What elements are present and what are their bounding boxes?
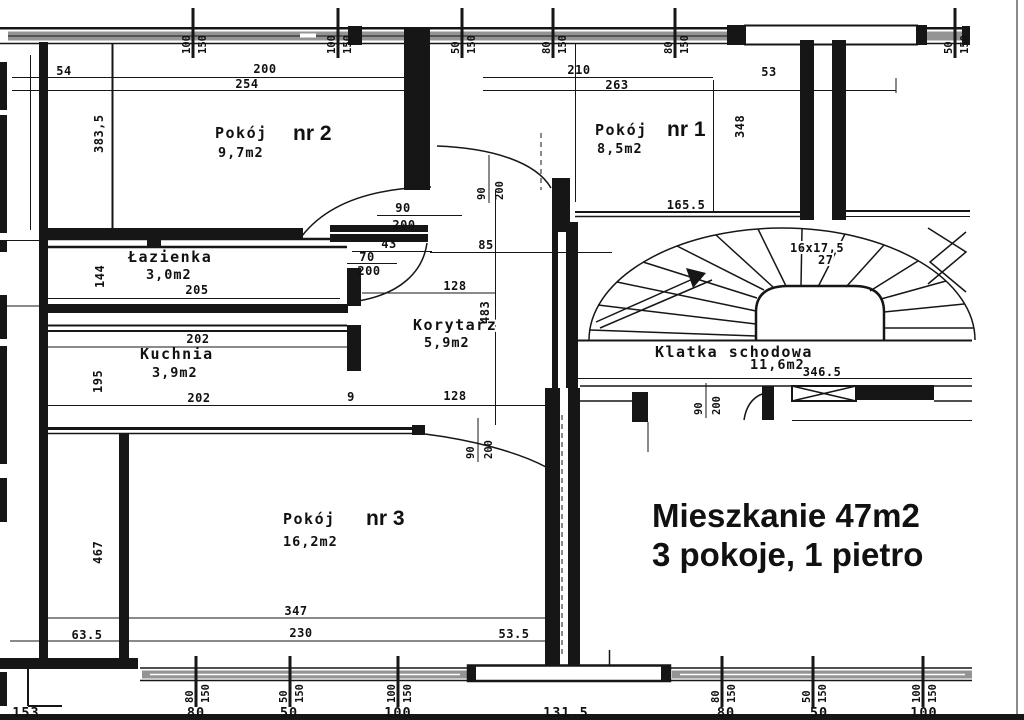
dim-347: 347 (284, 604, 307, 618)
marker-value: 150 (557, 35, 569, 54)
room-labels: Pokój nr 2 9,7m2 Pokój nr 1 8,5m2 Łazien… (127, 118, 844, 550)
label-pokoj3-nr: nr 3 (366, 507, 405, 530)
marker-value: 100 (911, 684, 923, 703)
dim-254: 254 (235, 77, 258, 91)
left-edge-walls (0, 42, 48, 660)
window-marker: 50 150 (801, 656, 829, 707)
marker-value: 150 (927, 684, 939, 703)
marker-value: 50 (943, 41, 955, 54)
dim-202-top: 202 (186, 332, 209, 346)
bottom-dim: 131.5 (543, 705, 589, 720)
apartment-annotation: Mieszkanie 47m2 3 pokoje, 1 pietro (652, 497, 923, 573)
dim-467: 467 (91, 541, 105, 564)
dim-263: 263 (605, 78, 628, 92)
top-wall-windows (0, 25, 970, 45)
bottom-dim: 100 (384, 705, 411, 720)
label-pokoj3: Pokój (283, 510, 336, 528)
marker-value: 80 (663, 41, 675, 54)
label-kuchnia: Kuchnia (140, 345, 214, 363)
label-lazienka: Łazienka (127, 248, 212, 266)
door-pokoj3-width: 90 (465, 446, 477, 459)
bottom-dim: 50 (280, 705, 298, 720)
window-marker: 100 150 (911, 656, 939, 707)
dim-144: 144 (93, 265, 107, 288)
dim-202-bottom: 202 (187, 391, 210, 405)
bottom-dim: 153 (12, 705, 39, 720)
dim-53: 53 (761, 65, 776, 79)
dim-195: 195 (91, 370, 105, 393)
marker-value: 150 (342, 35, 354, 54)
door-pokoj2-width: 90 (395, 201, 410, 215)
marker-value: 100 (386, 684, 398, 703)
window-marker: 50 150 (278, 656, 306, 707)
stair-direction-arrow (596, 274, 704, 322)
marker-value: 150 (679, 35, 691, 54)
dim-205: 205 (185, 283, 208, 297)
entrance-wall (566, 379, 972, 453)
area-pokoj1: 8,5m2 (597, 141, 643, 157)
dim-165-5: 165.5 (667, 198, 706, 212)
dim-128-top: 128 (443, 279, 466, 293)
dim-383-5: 383,5 (92, 114, 106, 153)
annotation-line2: 3 pokoje, 1 pietro (652, 536, 923, 573)
bottom-dim: 80 (187, 705, 205, 720)
door-entrance-width: 90 (693, 402, 705, 415)
dim-346-5: 346.5 (803, 365, 842, 379)
door-arc-entrance (744, 394, 762, 420)
room-pokoj1-walls (437, 40, 970, 388)
marker-value: 50 (450, 41, 462, 54)
dim-230: 230 (289, 626, 312, 640)
marker-value: 80 (710, 690, 722, 703)
door-lazienka-43: 43 (381, 237, 396, 251)
label-pokoj1-nr: nr 1 (667, 118, 706, 141)
dim-85: 85 (478, 238, 493, 252)
annotation-line1: Mieszkanie 47m2 (652, 497, 920, 534)
marker-value: 150 (200, 684, 212, 703)
marker-value: 150 (726, 684, 738, 703)
dim-128-bottom: 128 (443, 389, 466, 403)
floor-plan: Pokój nr 2 9,7m2 Pokój nr 1 8,5m2 Łazien… (0, 0, 1024, 720)
dim-210: 210 (567, 63, 590, 77)
marker-value: 50 (801, 690, 813, 703)
marker-value: 150 (402, 684, 414, 703)
marker-value: 100 (181, 35, 193, 54)
door-pokoj2-height: 200 (392, 218, 415, 232)
area-lazienka: 3,0m2 (146, 267, 192, 283)
stair-steps (590, 229, 974, 336)
marker-value: 150 (817, 684, 829, 703)
marker-value: 150 (294, 684, 306, 703)
dim-54: 54 (56, 64, 71, 78)
area-pokoj3: 16,2m2 (283, 534, 338, 550)
floor-plan-drawing: Pokój nr 2 9,7m2 Pokój nr 1 8,5m2 Łazien… (0, 0, 1024, 720)
marker-value: 80 (184, 690, 196, 703)
window-marker: 100 150 (386, 656, 414, 707)
marker-value: 150 (959, 35, 971, 54)
dim-53-5: 53.5 (499, 627, 530, 641)
marker-value: 150 (466, 35, 478, 54)
staircase (578, 228, 975, 341)
area-kuchnia: 3,9m2 (152, 365, 198, 381)
bottom-dim: 80 (717, 705, 735, 720)
area-pokoj2: 9,7m2 (218, 145, 264, 161)
door-pokoj3-height: 200 (483, 440, 495, 459)
marker-value: 100 (326, 35, 338, 54)
window-marker: 80 150 (710, 656, 738, 707)
dim-348: 348 (733, 115, 747, 138)
dim-200: 200 (253, 62, 276, 76)
door-lazienka-height: 200 (357, 264, 380, 278)
marker-value: 50 (278, 690, 290, 703)
stair-riser-label: 27 (818, 253, 833, 267)
door-pokoj1-height: 200 (494, 181, 506, 200)
window-marker: 80 150 (184, 656, 212, 707)
label-pokoj2-nr: nr 2 (293, 122, 332, 145)
door-entrance-height: 200 (711, 396, 723, 415)
area-klatka: 11,6m2 (750, 357, 805, 373)
label-pokoj1: Pokój (595, 121, 648, 139)
dim-9: 9 (347, 390, 355, 404)
door-lazienka-width: 70 (359, 250, 374, 264)
dim-483: 483 (478, 301, 492, 324)
label-pokoj2: Pokój (215, 124, 268, 142)
marker-value: 80 (541, 41, 553, 54)
door-pokoj1-width: 90 (476, 187, 488, 200)
bottom-dim: 100 (910, 705, 937, 720)
dim-63-5: 63.5 (72, 628, 103, 642)
marker-value: 150 (197, 35, 209, 54)
bottom-dim: 50 (810, 705, 828, 720)
area-korytarz: 5,9m2 (424, 335, 470, 351)
